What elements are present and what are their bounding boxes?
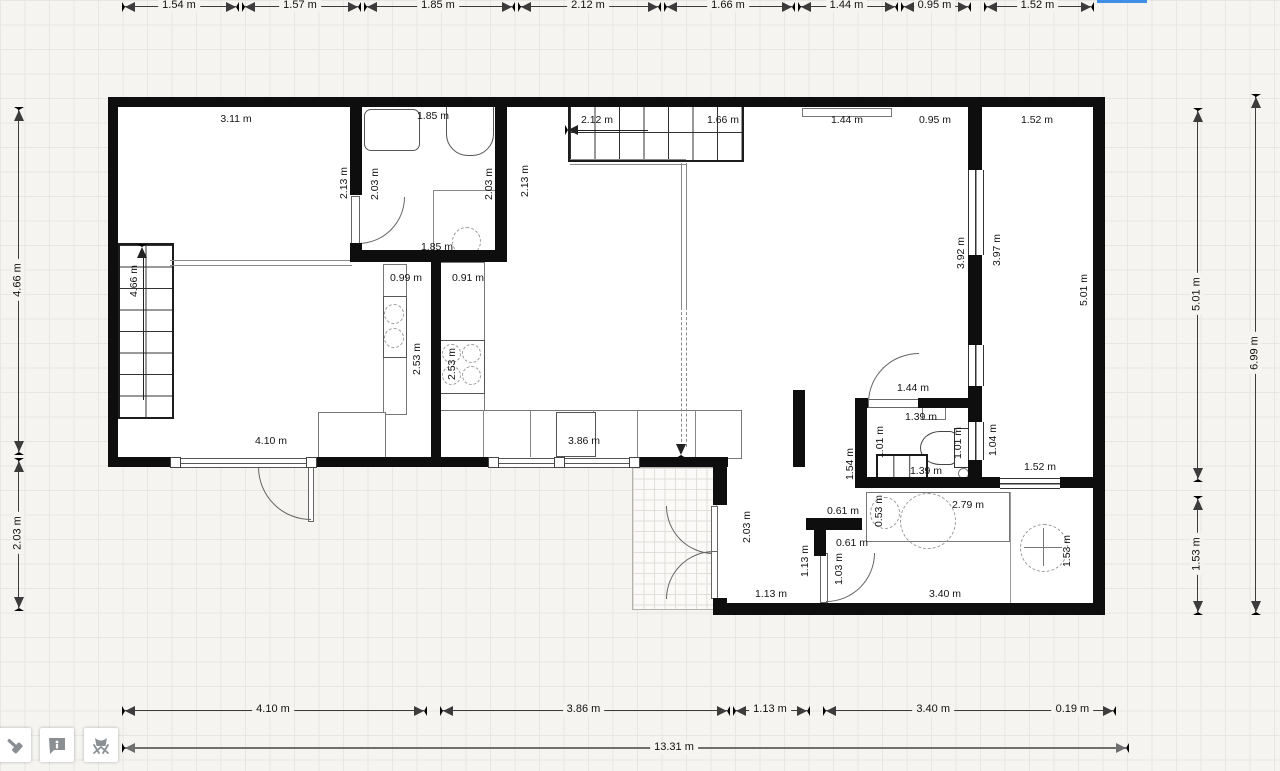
measurement-label: 0.61 m [827, 505, 859, 517]
sink-basin[interactable] [384, 328, 404, 348]
dim-label: 1.54 m [158, 0, 200, 12]
wall-segment[interactable] [1093, 107, 1105, 615]
dim-label: 2.03 m [12, 512, 25, 554]
dim-label: 1.66 m [707, 0, 749, 12]
wall-segment[interactable] [118, 457, 172, 467]
staircase[interactable] [118, 243, 174, 419]
stair-direction-arrow [676, 444, 686, 458]
dim-label: 4.66 m [12, 259, 25, 301]
measurement-label: 3.86 m [568, 435, 600, 447]
wall-segment[interactable] [968, 255, 982, 345]
wall-segment[interactable] [350, 107, 362, 195]
dim-label: 13.31 m [650, 741, 698, 754]
window[interactable] [968, 422, 984, 460]
measurement-label: 1.04 m [987, 424, 999, 456]
shower-drain [1024, 528, 1062, 566]
floor-plan-editor: { "app":{"view":"floor-plan-canvas"}, "c… [0, 0, 1280, 771]
dim-arrow [1103, 706, 1116, 716]
info-bubble-icon [46, 734, 68, 756]
dim-arrow [782, 2, 795, 12]
wall-segment[interactable] [431, 262, 441, 457]
dim-arrow [1081, 2, 1094, 12]
cabinet-divider [695, 410, 696, 457]
dim-arrow [440, 706, 453, 716]
measurement-label: 2.03 m [369, 168, 381, 200]
dim-arrow [14, 597, 24, 611]
measurement-label: 1.53 m [1061, 535, 1073, 567]
dim-arrow [502, 2, 515, 12]
chair-icon [89, 733, 113, 757]
dim-arrow [1251, 601, 1261, 615]
wall-segment[interactable] [108, 97, 1105, 107]
cabinet-divider [637, 410, 638, 457]
dim-arrow [414, 706, 427, 716]
measurement-label: 2.13 m [519, 165, 531, 197]
measurement-label: 1.44 m [831, 114, 863, 126]
dim-arrow [958, 2, 971, 12]
measurement-label: 4.66 m [128, 265, 140, 297]
dim-arrow [797, 706, 810, 716]
measurement-label: 1.13 m [755, 588, 787, 600]
measurement-label: 0.61 m [836, 537, 868, 549]
dim-arrow [14, 107, 24, 121]
measurement-label: 2.03 m [483, 168, 495, 200]
wall-segment[interactable] [855, 477, 1000, 488]
stove-burner[interactable] [462, 366, 481, 385]
room-divider [170, 260, 352, 266]
dim-overall [122, 747, 1126, 749]
dim-arrow [122, 2, 135, 12]
measurement-label: 1.39 m [905, 411, 937, 423]
stair-railing [681, 163, 687, 307]
dim-arrow [242, 2, 255, 12]
dim-label: 0.19 m [1052, 703, 1094, 716]
dim-arrow [885, 2, 898, 12]
dim-label: 1.44 m [826, 0, 868, 12]
stair-direction-arrow [137, 244, 147, 258]
door-swing[interactable] [258, 467, 311, 520]
measurement-label: 1.39 m [910, 465, 942, 477]
dim-arrow [348, 2, 361, 12]
washbasin-large[interactable] [900, 493, 956, 549]
measurement-label: 1.52 m [1021, 114, 1053, 126]
dim-label: 1.85 m [417, 0, 459, 12]
wall-segment[interactable] [855, 398, 868, 408]
wall-segment[interactable] [855, 408, 867, 483]
dim-arrow [648, 2, 661, 12]
cabinet-divider [483, 410, 484, 457]
wall-segment[interactable] [313, 457, 490, 467]
measurement-label: 1.54 m [844, 448, 856, 480]
wall-segment[interactable] [793, 390, 805, 467]
dim-arrow [1251, 94, 1261, 108]
measurement-label: 4.10 m [255, 435, 287, 447]
measurement-label: 1.13 m [799, 545, 811, 577]
stair-arrow-line [143, 254, 144, 400]
stair-arrow-line [578, 130, 648, 131]
floor-plan-canvas[interactable]: 3.11 m1.85 m2.12 m1.66 m1.44 m0.95 m1.52… [0, 0, 1280, 771]
dim-arrow [122, 706, 135, 716]
wall-segment[interactable] [814, 530, 826, 556]
window[interactable] [968, 170, 984, 255]
wall-segment[interactable] [495, 107, 507, 250]
measurement-label: 2.03 m [741, 511, 753, 543]
wall-segment[interactable] [713, 598, 727, 615]
measurement-label: 2.79 m [952, 499, 984, 511]
wall-segment[interactable] [727, 603, 1093, 615]
measurement-label: 1.85 m [417, 110, 449, 122]
window-handle [554, 457, 565, 468]
dim-arrow [717, 706, 730, 716]
measurement-label: 2.13 m [338, 167, 350, 199]
dim-arrow [122, 743, 135, 753]
dim-arrow [798, 2, 811, 12]
wall-segment[interactable] [968, 386, 982, 422]
measurement-label: 3.40 m [929, 588, 961, 600]
window[interactable] [1000, 478, 1060, 489]
measurement-label: 3.92 m [955, 237, 967, 269]
window-handle [488, 457, 499, 468]
measurement-label: 1.44 m [897, 382, 929, 394]
measurement-label: 1.01 m [952, 427, 964, 459]
stair-railing [570, 159, 686, 165]
wall-segment[interactable] [1060, 477, 1093, 488]
dim-arrow [1193, 496, 1203, 510]
furniture-tool-button[interactable] [84, 728, 118, 762]
dim-arrow [14, 441, 24, 455]
stair-guide-line [681, 307, 687, 447]
measurement-label: 1.52 m [1024, 461, 1056, 473]
measurement-label: 0.95 m [919, 114, 951, 126]
cabinet-divider [530, 410, 531, 457]
dim-label: 1.52 m [1017, 0, 1059, 12]
dim-label: 3.86 m [563, 703, 605, 716]
measurement-label: 0.91 m [452, 272, 484, 284]
dim-label: 1.53 m [1191, 533, 1204, 575]
dim-arrow [733, 706, 746, 716]
build-tool-button[interactable] [0, 728, 31, 762]
hammer-icon [3, 734, 25, 756]
measurement-label: 1.85 m [421, 241, 453, 253]
wall-segment[interactable] [633, 457, 728, 467]
measurement-label: 2.53 m [446, 348, 458, 380]
dim-label: 3.40 m [912, 703, 954, 716]
washing-machine[interactable] [364, 109, 420, 151]
bathtub[interactable] [446, 101, 494, 156]
window[interactable] [968, 345, 984, 386]
measurement-label: 1.01 m [874, 426, 886, 458]
dim-label: 0.95 m [914, 0, 956, 12]
dim-arrow [364, 2, 377, 12]
dim-arrow [901, 2, 914, 12]
dim-arrow [1116, 743, 1129, 753]
dim-arrow [1193, 468, 1203, 482]
dim-label: 4.10 m [252, 703, 294, 716]
sliding-window[interactable] [172, 458, 313, 468]
measurement-label: 0.53 m [873, 495, 885, 527]
wall-segment[interactable] [713, 467, 727, 505]
measurement-label: 5.01 m [1078, 274, 1090, 306]
dim-arrow [226, 2, 239, 12]
measurement-label: 3.11 m [220, 113, 251, 125]
staircase[interactable] [568, 103, 744, 162]
wall-segment[interactable] [968, 107, 982, 170]
measurement-label: 1.66 m [707, 114, 739, 126]
dim-arrow [984, 2, 997, 12]
measurement-label: 0.99 m [390, 272, 422, 284]
dim-label: 1.13 m [749, 703, 791, 716]
dim-label: 2.12 m [567, 0, 609, 12]
measurement-label: 3.97 m [991, 234, 1003, 266]
dim-label: 5.01 m [1191, 273, 1204, 315]
stair-direction-arrow [565, 125, 578, 135]
wall-segment[interactable] [806, 518, 862, 530]
dim-arrow [1193, 108, 1203, 122]
dim-arrow [518, 2, 531, 12]
sink-basin[interactable] [384, 304, 404, 324]
dim-arrow [664, 2, 677, 12]
stove-burner[interactable] [462, 344, 481, 363]
window-handle [629, 457, 640, 468]
info-tool-button[interactable] [40, 728, 74, 762]
measurement-label: 1.03 m [833, 553, 845, 585]
measurement-label: 2.53 m [411, 343, 423, 375]
dim-arrow [823, 706, 836, 716]
sideboard[interactable] [318, 412, 386, 459]
dim-arrow [1193, 601, 1203, 615]
shower-divider [1010, 492, 1011, 603]
dim-label: 6.99 m [1249, 332, 1262, 374]
window-handle [306, 457, 317, 468]
dim-arrow [14, 458, 24, 472]
wall-segment[interactable] [918, 398, 970, 408]
window-handle [170, 457, 181, 468]
wall-segment[interactable] [108, 107, 118, 467]
selection-bar [1097, 0, 1147, 3]
dim-label: 1.57 m [279, 0, 321, 12]
measurement-label: 2.12 m [581, 114, 613, 126]
